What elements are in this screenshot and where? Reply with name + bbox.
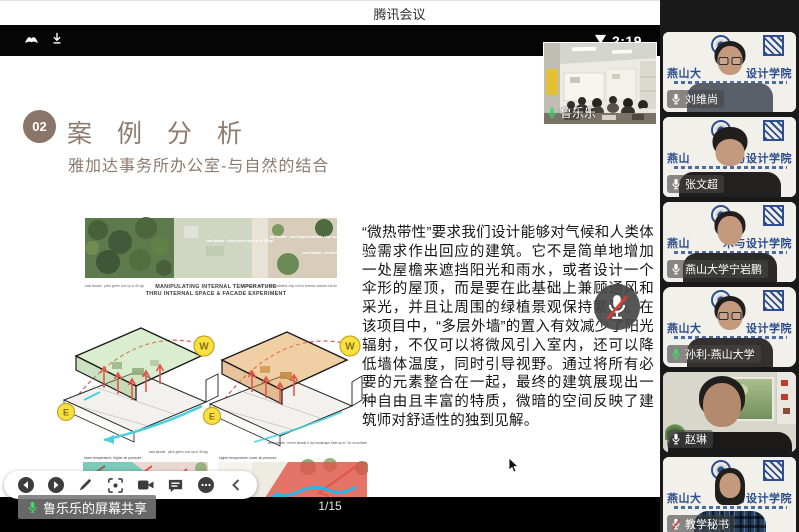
mic-on-icon — [671, 178, 681, 190]
participant-tile[interactable]: 赵琳 — [663, 372, 796, 452]
participant-name-label: 燕山大学宁岩鹏 — [667, 260, 768, 278]
previous-slide-icon[interactable] — [16, 476, 35, 495]
next-slide-icon[interactable] — [46, 476, 65, 495]
mic-on-icon — [27, 501, 38, 514]
screen-share-banner: 鲁乐乐的屏幕共享 — [18, 495, 156, 519]
participant-name: 刘维尚 — [685, 91, 718, 107]
face — [717, 216, 742, 245]
participant-name-label: 孙利-燕山大学 — [667, 345, 761, 363]
glasses — [718, 312, 741, 320]
camera-icon[interactable] — [136, 476, 155, 495]
mic-on-icon — [671, 433, 681, 445]
svg-text:west facade : mirror facade &: west facade : mirror facade & dry landsc… — [301, 251, 368, 255]
svg-text:higher temperature, lower air: higher temperature, lower air pressure — [219, 456, 277, 460]
participant-name-label: 赵琳 — [667, 430, 713, 448]
participant-name: 燕山大学宁岩鹏 — [685, 261, 762, 277]
collapse-panel-icon[interactable] — [226, 476, 245, 495]
svg-text:THRU INTERNAL SPACE & FACADE E: THRU INTERNAL SPACE & FACADE EXPERIMENT — [146, 291, 287, 297]
svg-text:top facade : low firing breath: top facade : low firing breathable clay … — [241, 284, 337, 288]
glasses — [718, 57, 741, 65]
participant-name: 孙利-燕山大学 — [685, 346, 755, 362]
svg-text:east facade : pitch green roof: east facade : pitch green roof up to 45 … — [149, 450, 209, 454]
annotate-pen-icon[interactable] — [76, 476, 95, 495]
svg-text:E: E — [209, 412, 215, 422]
self-name-label: 鲁乐乐 — [547, 104, 596, 121]
axon-right: W E — [204, 332, 363, 446]
mic-on-icon — [671, 93, 681, 105]
participant-tile[interactable]: 燕山与设计学院 张文超 — [663, 117, 796, 197]
axon-left: W E — [58, 328, 219, 444]
svg-text:E: E — [63, 408, 69, 418]
face — [719, 473, 740, 498]
more-icon[interactable] — [196, 476, 215, 495]
slide-number-badge: 02 — [23, 110, 56, 143]
mic-muted-icon — [671, 518, 681, 530]
svg-text:lower temperature, higher air: lower temperature, higher air pressure — [84, 456, 142, 460]
slide-subtitle: 雅加达事务所办公室-与自然的结合 — [68, 152, 329, 176]
download-icon — [50, 31, 64, 51]
chat-icon[interactable] — [166, 476, 185, 495]
app-notification-icon — [24, 32, 39, 50]
aerial-photo-strip: east facade : pitch green roof up to 45 … — [85, 217, 368, 278]
meeting-window: 腾讯会议 — [0, 0, 799, 532]
mouse-cursor — [508, 458, 519, 478]
mic-speaking-icon — [671, 348, 681, 360]
svg-text:top facade : low firing breath: top facade : low firing breathable clay … — [270, 235, 368, 239]
face — [703, 383, 741, 427]
participant-name-label: 刘维尚 — [667, 90, 724, 108]
participant-name-label: 教学秘书 — [667, 515, 735, 532]
participant-name: 张文超 — [685, 176, 718, 192]
svg-text:east facade : pitch green roof: east facade : pitch green roof up to 45 … — [85, 284, 145, 288]
muted-mic-overlay[interactable] — [594, 284, 640, 330]
participant-tile[interactable]: 燕山大术与设计学院 教学秘书 — [663, 457, 796, 532]
svg-text:W: W — [345, 342, 355, 353]
participant-tile[interactable]: 燕山术与设计学院 燕山大学宁岩鹏 — [663, 202, 796, 282]
mic-on-icon — [671, 263, 681, 275]
screen-share-banner-text: 鲁乐乐的屏幕共享 — [43, 498, 147, 517]
svg-text:west facade : mirror facade &: west facade : mirror facade & dry landsc… — [268, 441, 367, 445]
face — [715, 139, 744, 166]
participant-tile[interactable]: 燕山大设计学院 孙利-燕山大学 — [663, 287, 796, 367]
participant-tile[interactable]: 燕山大设计学院 刘维尚 — [663, 32, 796, 112]
slide-title: 案 例 分 析 — [67, 114, 251, 150]
self-video-thumbnail[interactable]: 鲁乐乐 — [543, 42, 657, 125]
svg-text:W: W — [199, 342, 209, 353]
participant-name-label: 张文超 — [667, 175, 724, 193]
participant-name: 赵琳 — [685, 431, 707, 447]
self-name: 鲁乐乐 — [560, 104, 596, 121]
participants-sidebar[interactable]: 燕山大设计学院 刘维尚 燕山与设计学院 — [660, 0, 799, 532]
screenshot-frame-icon[interactable] — [106, 476, 125, 495]
svg-text:east facade : pitch green roof: east facade : pitch green roof up to 45 … — [206, 239, 274, 243]
mic-on-icon — [547, 107, 557, 119]
participant-name: 教学秘书 — [685, 516, 729, 532]
window-title: 腾讯会议 — [373, 4, 425, 23]
screen-share-area: 2:19 02 案 例 分 析 雅加达事务所办公室-与自然的结合 “微热带性”要… — [0, 25, 660, 532]
